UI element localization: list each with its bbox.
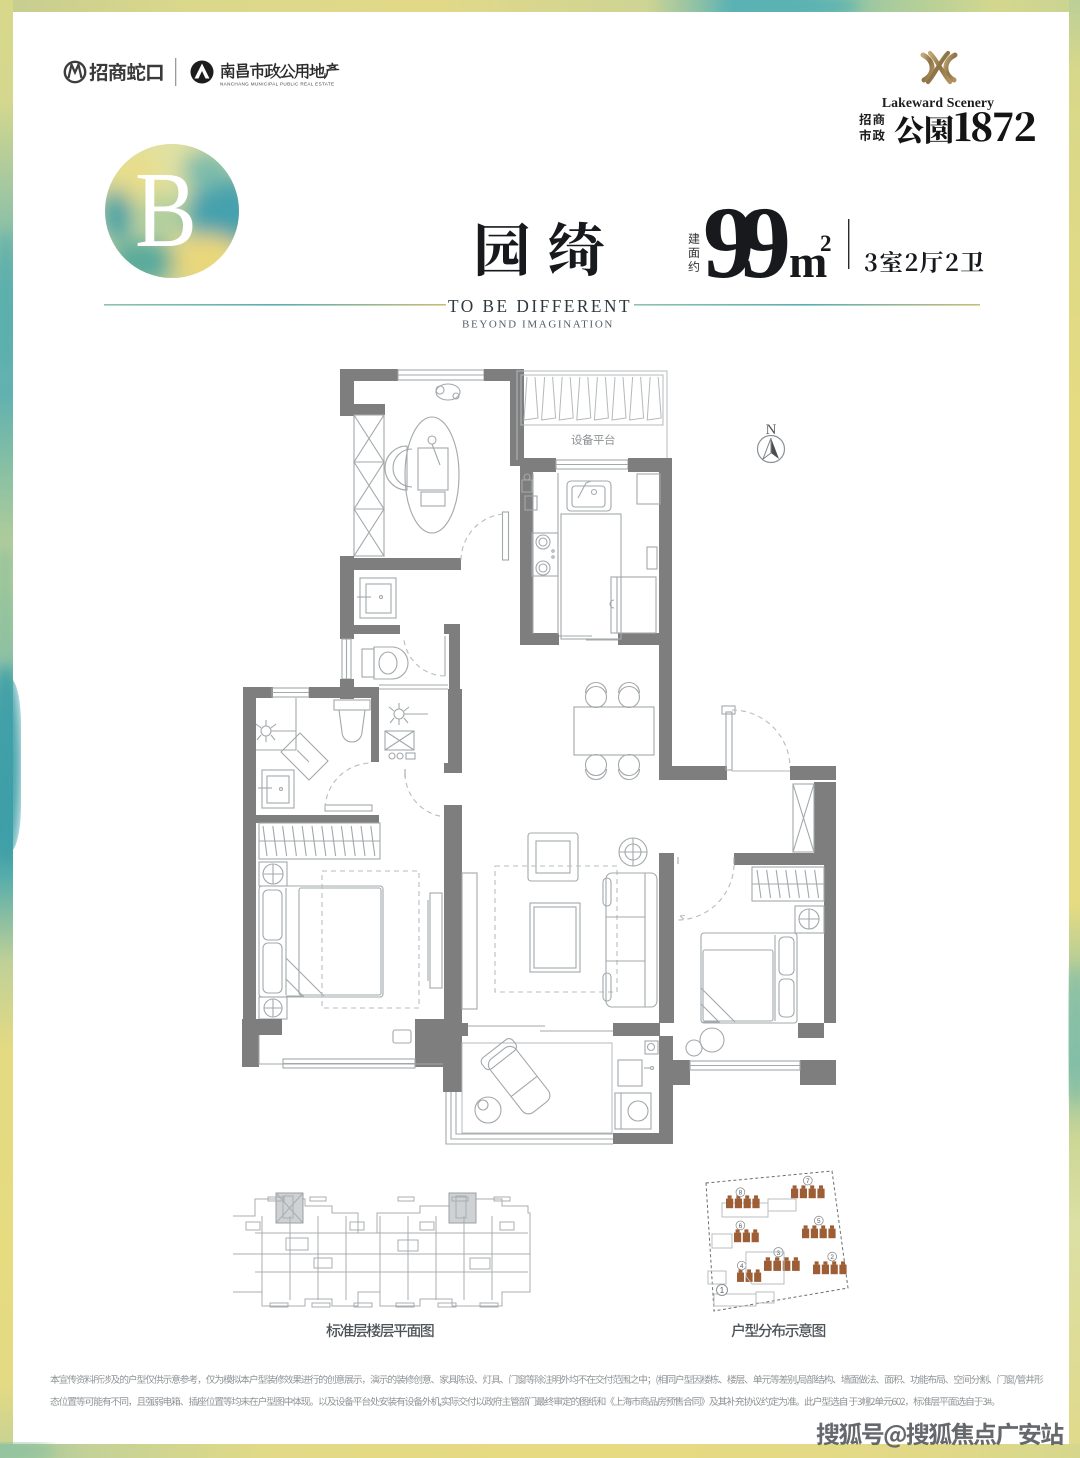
svg-text:8: 8 — [739, 1190, 743, 1197]
svg-text:Lakeward Scenery: Lakeward Scenery — [882, 95, 994, 110]
svg-text:2: 2 — [820, 231, 832, 256]
svg-text:1: 1 — [720, 1286, 725, 1295]
svg-text:5: 5 — [817, 1218, 821, 1225]
svg-text:3: 3 — [777, 1250, 781, 1257]
svg-text:TO BE DIFFERENT: TO BE DIFFERENT — [448, 296, 632, 316]
svg-text:BEYOND IMAGINATION: BEYOND IMAGINATION — [462, 319, 614, 331]
svg-text:7: 7 — [806, 1178, 810, 1185]
svg-text:B: B — [135, 151, 197, 270]
svg-text:NANCHANG MUNICIPAL PUBLIC REAL: NANCHANG MUNICIPAL PUBLIC REAL ESTATE — [220, 82, 334, 87]
svg-text:4: 4 — [740, 1263, 744, 1270]
svg-text:6: 6 — [739, 1223, 743, 1230]
svg-text:2: 2 — [830, 1254, 834, 1261]
svg-text:99: 99 — [703, 186, 791, 300]
